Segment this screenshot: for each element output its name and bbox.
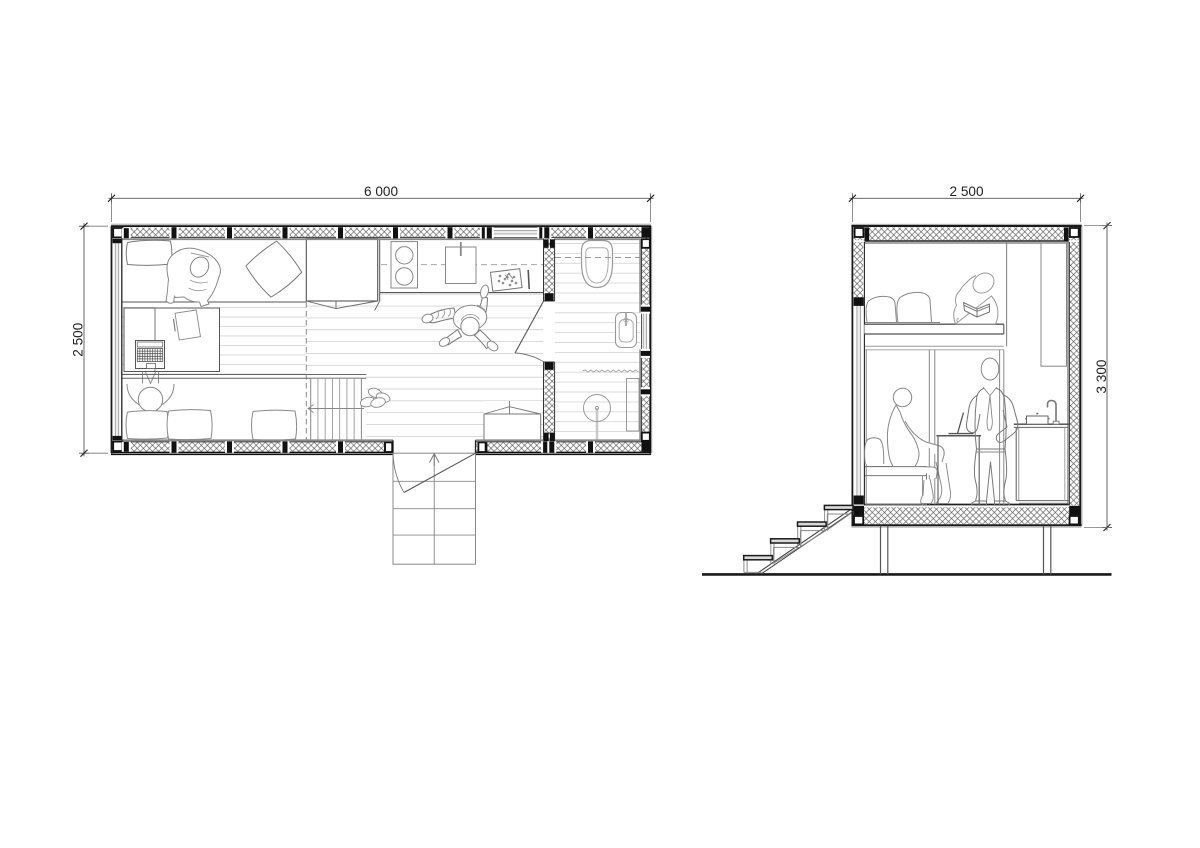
svg-text:2 500: 2 500 xyxy=(71,322,86,356)
svg-text:2 500: 2 500 xyxy=(949,184,983,199)
svg-text:6 000: 6 000 xyxy=(364,184,398,199)
svg-text:3 300: 3 300 xyxy=(1094,359,1109,393)
